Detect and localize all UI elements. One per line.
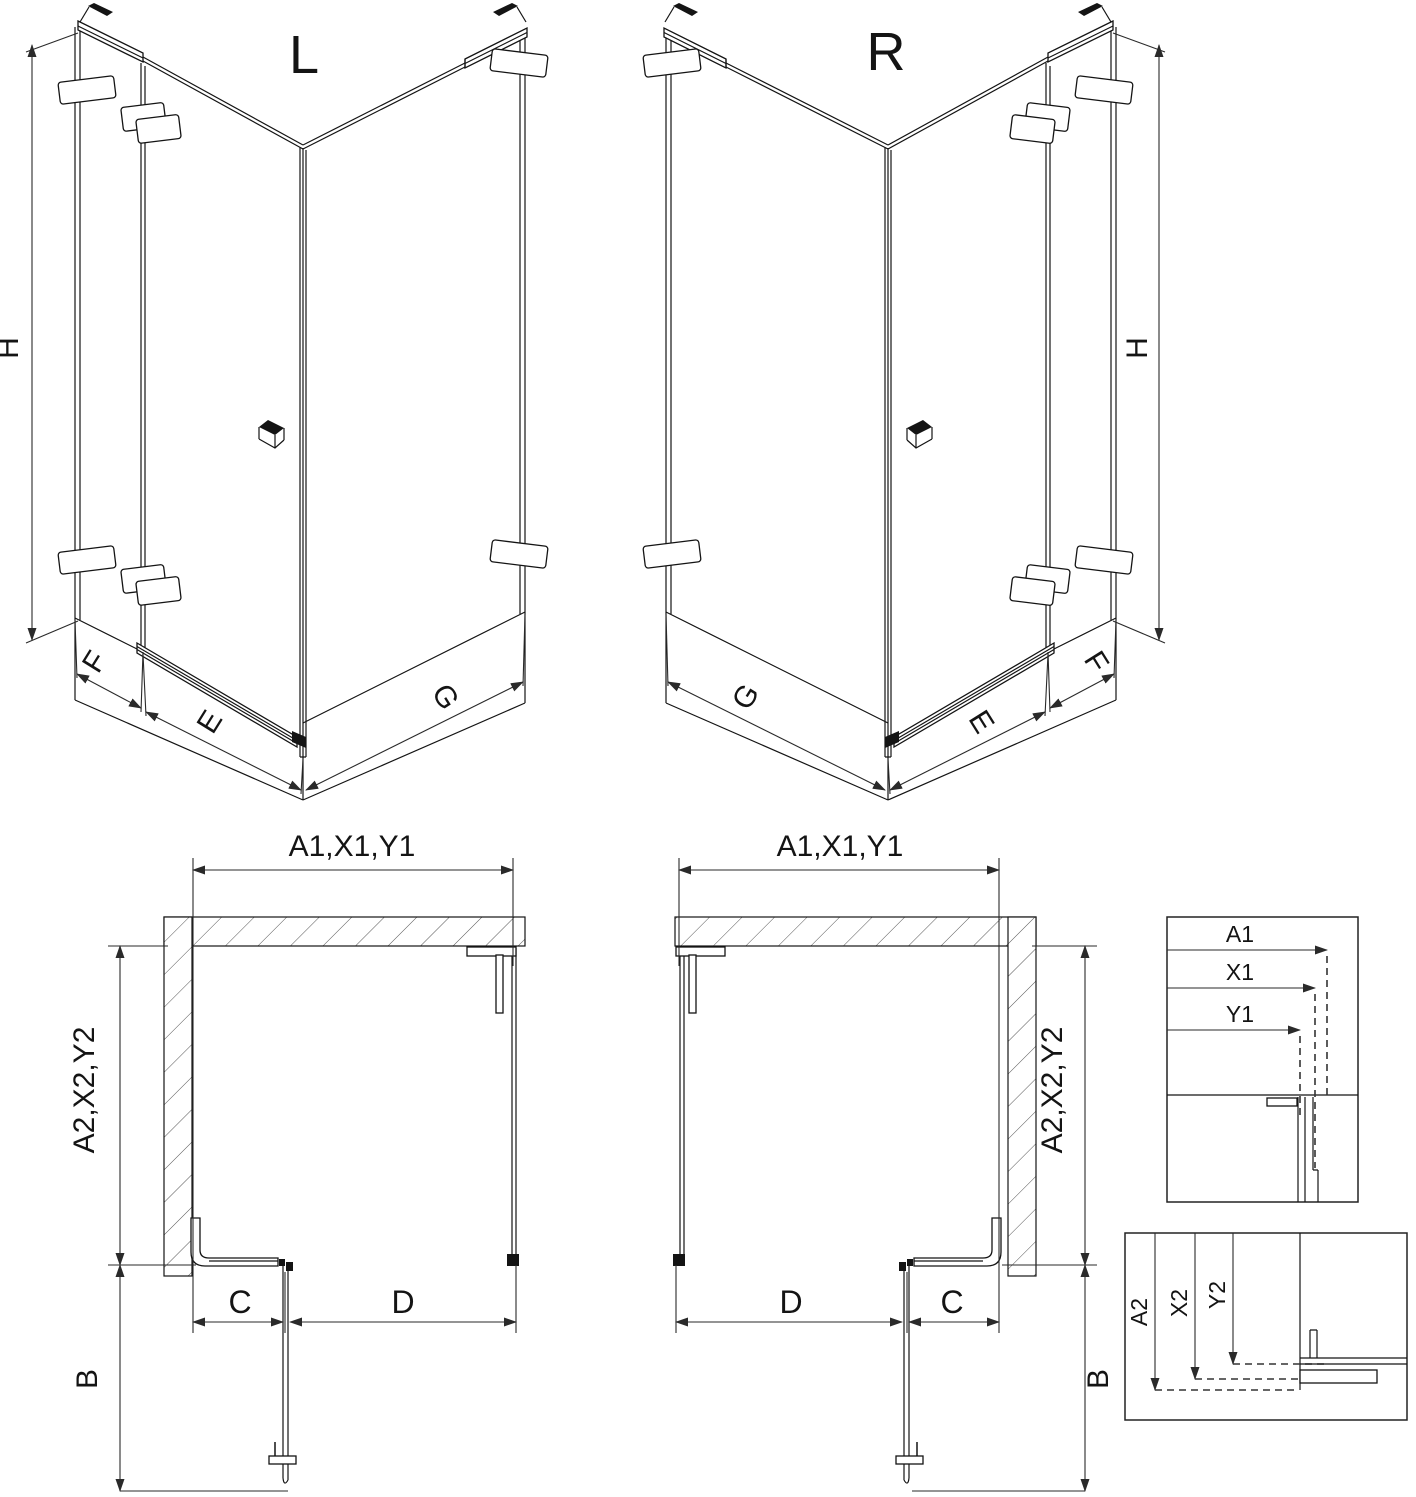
door-hinges-right-view (1010, 103, 1071, 606)
walls-plan-right (675, 917, 1036, 1276)
dim-label-A2X2Y2: A2,X2,Y2 (68, 1027, 101, 1154)
shower-enclosure-drawing: L (0, 0, 1416, 1497)
dim-label-H: H (1121, 337, 1154, 359)
glass-plan-right (673, 947, 1001, 1483)
dim-label-A1X1Y1: A1,X1,Y1 (289, 830, 416, 863)
dim-label-F: F (76, 645, 114, 678)
technical-drawing-sheet: L (0, 0, 1416, 1497)
dim-label-B: B (1082, 1369, 1115, 1389)
dim-label-D: D (779, 1284, 802, 1320)
detail-label-Y2: Y2 (1204, 1281, 1230, 1309)
dim-label-D: D (391, 1284, 414, 1320)
dim-label-G: G (425, 678, 465, 715)
dim-label-C: C (940, 1284, 963, 1320)
plan-view-left: A1,X1,Y1 A2,X2,Y2 C D B (68, 830, 525, 1491)
detail-label-A1: A1 (1226, 921, 1254, 947)
detail-label-X2: X2 (1166, 1289, 1192, 1317)
door-knob-left-view (259, 420, 284, 448)
view-label-right: R (867, 22, 906, 82)
dim-label-A2X2Y2: A2,X2,Y2 (1036, 1027, 1069, 1154)
door-knob-right-view (907, 420, 932, 448)
dimensions-right-view: H F E G (666, 33, 1165, 794)
glass-plan-left (191, 947, 519, 1483)
iso-view-left: L (0, 3, 548, 800)
dimensions-left-view: H F E G (0, 33, 525, 794)
dim-label-F: F (1077, 645, 1115, 678)
dim-label-H: H (0, 337, 25, 359)
view-label-left: L (289, 25, 319, 85)
detail-label-X1: X1 (1226, 959, 1254, 985)
dim-label-C: C (228, 1284, 251, 1320)
walls-plan-left (164, 917, 525, 1276)
dim-label-E: E (191, 705, 230, 739)
dim-label-B: B (71, 1369, 104, 1389)
door-hinges-left-view (121, 102, 182, 605)
detail-label-Y1: Y1 (1226, 1001, 1254, 1027)
detail-box-width: A1 X1 Y1 (1167, 917, 1358, 1202)
dim-label-G: G (726, 678, 766, 715)
detail-label-A2: A2 (1126, 1298, 1152, 1326)
plan-view-right: A1,X1,Y1 A2,X2,Y2 C D B (673, 830, 1115, 1491)
detail-box-depth: A2 X2 Y2 (1125, 1233, 1407, 1420)
iso-view-right: R (643, 3, 1165, 800)
dim-label-E: E (962, 705, 1001, 739)
dim-label-A1X1Y1: A1,X1,Y1 (777, 830, 904, 863)
